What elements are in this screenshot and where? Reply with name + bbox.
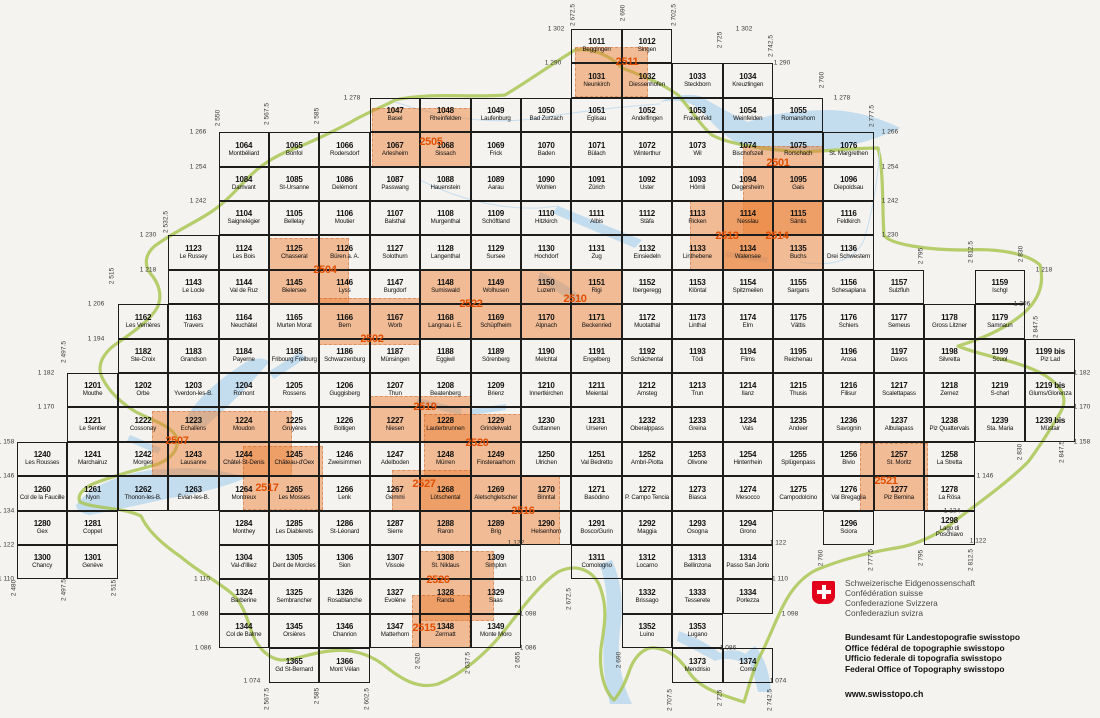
sheet-1252[interactable]: 1252Ambri-Piotta	[622, 442, 672, 476]
sheet-1239-bis[interactable]: 1239 bisMüstair	[1025, 407, 1075, 441]
sheet-number: 1055	[790, 107, 807, 115]
sheet-number: 1164	[236, 314, 253, 322]
sheet-number: 1243	[185, 451, 202, 459]
composite-sheet-number-2515: 2515	[412, 622, 435, 634]
sheet-1326[interactable]: 1326Rosablanche	[319, 579, 369, 613]
sheet-1251[interactable]: 1251Val Bedretto	[571, 442, 621, 476]
sheet-1238[interactable]: 1238Piz Quattervals	[924, 407, 974, 441]
sheet-1205[interactable]: 1205Rossens	[269, 373, 319, 407]
sheet-name: Guttannen	[532, 426, 560, 432]
sheet-name: Scuol	[992, 357, 1007, 363]
sheet-name: Marchairuz	[78, 460, 107, 466]
sheet-1111[interactable]: 1111Albis	[571, 201, 621, 235]
sheet-1300[interactable]: 1300Chancy	[17, 545, 67, 579]
sheet-1145[interactable]: 1145Bielersee	[269, 270, 319, 304]
sheet-1225[interactable]: 1225Gruyères	[269, 407, 319, 441]
sheet-name: Bischofszell	[732, 151, 763, 157]
sheet-1216[interactable]: 1216Filisur	[823, 373, 873, 407]
sheet-1280[interactable]: 1280Gex	[17, 511, 67, 545]
sheet-1047[interactable]: 1047Basel	[370, 98, 420, 132]
sheet-1230[interactable]: 1230Guttannen	[521, 407, 571, 441]
sheet-1095[interactable]: 1095Gais	[773, 167, 823, 201]
sheet-1011[interactable]: 1011Beggingen	[571, 29, 621, 63]
sheet-name: Biasca	[689, 495, 707, 501]
sheet-1188[interactable]: 1188Eggiwil	[420, 339, 470, 373]
sheet-1210[interactable]: 1210Innertkirchen	[521, 373, 571, 407]
sheet-name: Splügenpass	[781, 460, 815, 466]
sheet-1201[interactable]: 1201Mouthe	[67, 373, 117, 407]
sheet-1157[interactable]: 1157Sulzfluh	[874, 270, 924, 304]
sheet-1034[interactable]: 1034Kreuzlingen	[723, 63, 773, 97]
sheet-1066[interactable]: 1066Rodersdorf	[319, 132, 369, 166]
sheet-number: 1312	[638, 554, 655, 562]
sheet-1165[interactable]: 1165Murten Morat	[269, 304, 319, 338]
sheet-number: 1265	[286, 486, 303, 494]
sheet-1204[interactable]: 1204Romont	[219, 373, 269, 407]
sheet-1109[interactable]: 1109Schöftland	[471, 201, 521, 235]
sheet-name: Sulzfluh	[889, 288, 910, 294]
sheet-number: 1105	[286, 210, 303, 218]
sheet-1366[interactable]: 1366Mont Vélan	[319, 648, 369, 682]
sheet-1073[interactable]: 1073Wil	[672, 132, 722, 166]
sheet-name: Adelboden	[381, 460, 409, 466]
sheet-1256[interactable]: 1256Bivio	[823, 442, 873, 476]
sheet-1152[interactable]: 1152Ibergeregg	[622, 270, 672, 304]
sheet-name: Randa	[437, 598, 454, 604]
sheet-1198[interactable]: 1198Silvretta	[924, 339, 974, 373]
sheet-1182[interactable]: 1182Ste-Croix	[118, 339, 168, 373]
sheet-1054[interactable]: 1054Weinfelden	[723, 98, 773, 132]
sheet-number: 1353	[689, 623, 706, 631]
sheet-1334[interactable]: 1334Porlezza	[723, 579, 773, 613]
sheet-number: 1344	[235, 623, 252, 631]
sheet-1221[interactable]: 1221Le Sentier	[67, 407, 117, 441]
sheet-1085[interactable]: 1085St-Ursanne	[269, 167, 319, 201]
sheet-name: Bielersee	[282, 288, 306, 294]
sheet-1072[interactable]: 1072Winterthur	[622, 132, 672, 166]
sheet-1272[interactable]: 1272P. Campo Tencia	[622, 476, 672, 510]
sheet-1209[interactable]: 1209Brienz	[471, 373, 521, 407]
sheet-name: Sargans	[787, 288, 809, 294]
sheet-1092[interactable]: 1092Uster	[622, 167, 672, 201]
sheet-1245[interactable]: 1245Château-d'Oex	[269, 442, 319, 476]
sheet-name: Gemmi	[385, 495, 404, 501]
sheet-1154[interactable]: 1154Spitzmeilen	[723, 270, 773, 304]
sheet-number: 1034	[739, 73, 756, 81]
sheet-name: Sembrancher	[276, 598, 312, 604]
sheet-name: Lauterbrunnen	[426, 426, 464, 432]
sheet-1091[interactable]: 1091Zürich	[571, 167, 621, 201]
sheet-1263[interactable]: 1263Évian-les-B.	[168, 476, 218, 510]
sheet-1233[interactable]: 1233Greina	[672, 407, 722, 441]
sheet-1129[interactable]: 1129Sursee	[471, 235, 521, 269]
sheet-1055[interactable]: 1055Romanshorn	[773, 98, 823, 132]
sheet-1313[interactable]: 1313Bellinzona	[672, 545, 722, 579]
sheet-1174[interactable]: 1174Elm	[723, 304, 773, 338]
sheet-1156[interactable]: 1156Schesaplana	[823, 270, 873, 304]
sheet-1332[interactable]: 1332Brissago	[622, 579, 672, 613]
sheet-1260[interactable]: 1260Col de la Faucille	[17, 476, 67, 510]
sheet-1051[interactable]: 1051Eglisau	[571, 98, 621, 132]
sheet-name: Frauenfeld	[683, 116, 711, 122]
sheet-1271[interactable]: 1271Basòdino	[571, 476, 621, 510]
sheet-1301[interactable]: 1301Genève	[67, 545, 117, 579]
sheet-number: 1201	[84, 382, 101, 390]
sheet-name: Uster	[640, 185, 654, 191]
sheet-1262[interactable]: 1262Thonon-les-B.	[118, 476, 168, 510]
sheet-1032[interactable]: 1032Diessenhofen	[622, 63, 672, 97]
sheet-name: Innertkirchen	[529, 391, 563, 397]
sheet-1086[interactable]: 1086Delémont	[319, 167, 369, 201]
sheet-1127[interactable]: 1127Solothurn	[370, 235, 420, 269]
sheet-1076[interactable]: 1076St. Margrethen	[823, 132, 873, 166]
sheet-1236[interactable]: 1236Savognin	[823, 407, 873, 441]
sheet-1278[interactable]: 1278La Rösa	[924, 476, 974, 510]
sheet-1194[interactable]: 1194Flims	[723, 339, 773, 373]
composite-sheet-number-2522: 2522	[459, 298, 482, 310]
sheet-number: 1116	[841, 210, 857, 218]
sheet-1281[interactable]: 1281Coppet	[67, 511, 117, 545]
sheet-1346[interactable]: 1346Chanrion	[319, 614, 369, 648]
sheet-name: Frick	[489, 151, 502, 157]
sheet-1250[interactable]: 1250Ulrichen	[521, 442, 571, 476]
sheet-name: Ibergeregg	[633, 288, 661, 294]
sheet-1327[interactable]: 1327Evolène	[370, 579, 420, 613]
sheet-number: 1247	[386, 451, 403, 459]
sheet-name: Fribourg Freiburg	[272, 357, 317, 363]
sheet-1143[interactable]: 1143Le Locle	[168, 270, 218, 304]
swisstopo-sheet-index-map: 1011Beggingen1012Singen1031Neunkirch1032…	[0, 0, 1100, 718]
sheet-1116[interactable]: 1116Feldkirch	[823, 201, 873, 235]
sheet-1291[interactable]: 1291Bosco/Gurin	[571, 511, 621, 545]
sheet-name: Binntal	[537, 495, 555, 501]
sheet-number: 1324	[235, 589, 252, 597]
sheet-1306[interactable]: 1306Sion	[319, 545, 369, 579]
sheet-1275[interactable]: 1275Campodolcino	[773, 476, 823, 510]
sheet-name: Steckborn	[684, 82, 711, 88]
sheet-1131[interactable]: 1131Zug	[571, 235, 621, 269]
sheet-1293[interactable]: 1293Osogna	[672, 511, 722, 545]
sheet-1094[interactable]: 1094Degersheim	[723, 167, 773, 201]
sheet-name: Glurns/Glorenza	[1029, 391, 1072, 397]
sheet-1159[interactable]: 1159Ischgl	[975, 270, 1025, 304]
sheet-1224[interactable]: 1224Moudon	[219, 407, 269, 441]
sheet-1374[interactable]: 1374Como	[723, 648, 773, 682]
sheet-1197[interactable]: 1197Davos	[874, 339, 924, 373]
sheet-1069[interactable]: 1069Frick	[471, 132, 521, 166]
sheet-name: Weinfelden	[733, 116, 762, 122]
sheet-name: Hochdorf	[534, 254, 558, 260]
sheet-name: Morges	[133, 460, 153, 466]
sheet-1305[interactable]: 1305Dent de Morcles	[269, 545, 319, 579]
sheet-1033[interactable]: 1033Steckborn	[672, 63, 722, 97]
sheet-number: 1212	[638, 382, 655, 390]
sheet-number: 1263	[185, 486, 202, 494]
sheet-1231[interactable]: 1231Urseren	[571, 407, 621, 441]
sheet-1196[interactable]: 1196Arosa	[823, 339, 873, 373]
sheet-1184[interactable]: 1184Payerne	[219, 339, 269, 373]
sheet-1261[interactable]: 1261Nyon	[67, 476, 117, 510]
sheet-1199-bis[interactable]: 1199 bisPiz Lad	[1025, 339, 1075, 373]
sheet-number: 1074	[739, 142, 756, 150]
sheet-1344[interactable]: 1344Col de Balme	[219, 614, 269, 648]
sheet-number: 1332	[638, 589, 655, 597]
sheet-1257[interactable]: 1257St. Moritz	[874, 442, 924, 476]
sheet-number: 1143	[185, 279, 202, 287]
sheet-number: 1127	[387, 245, 404, 253]
swisstopo-url-link[interactable]: www.swisstopo.ch	[845, 689, 923, 699]
sheet-1258[interactable]: 1258La Stretta	[924, 442, 974, 476]
sheet-1163[interactable]: 1163Travers	[168, 304, 218, 338]
sheet-1144[interactable]: 1144Val de Ruz	[219, 270, 269, 304]
sheet-1273[interactable]: 1273Biasca	[672, 476, 722, 510]
sheet-1177[interactable]: 1177Serneus	[874, 304, 924, 338]
composite-sheet-number-2504: 2504	[313, 264, 336, 276]
sheet-1298[interactable]: 1298Lago di Poschiavo	[924, 511, 974, 545]
sheet-1130[interactable]: 1130Hochdorf	[521, 235, 571, 269]
sheet-1288[interactable]: 1288Raron	[420, 511, 470, 545]
sheet-1240[interactable]: 1240Les Rousses	[17, 442, 67, 476]
sheet-1096[interactable]: 1096Diepoldsau	[823, 167, 873, 201]
sheet-1255[interactable]: 1255Splügenpass	[773, 442, 823, 476]
sheet-1104[interactable]: 1104Saignelégier	[219, 201, 269, 235]
sheet-1217[interactable]: 1217Scalettapass	[874, 373, 924, 407]
sheet-1147[interactable]: 1147Burgdorf	[370, 270, 420, 304]
sheet-number: 1261	[84, 486, 101, 494]
sheet-1242[interactable]: 1242Morges	[118, 442, 168, 476]
sheet-1049[interactable]: 1049Laufenburg	[471, 98, 521, 132]
sheet-number: 1195	[790, 348, 807, 356]
sheet-1222[interactable]: 1222Cossonay	[118, 407, 168, 441]
sheet-1179[interactable]: 1179Samnaun	[975, 304, 1025, 338]
sheet-1170[interactable]: 1170Alpnach	[521, 304, 571, 338]
sheet-1373[interactable]: 1373Mendrisio	[672, 648, 722, 682]
sheet-number: 1268	[437, 486, 454, 494]
sheet-1112[interactable]: 1112Stäfa	[622, 201, 672, 235]
sheet-1202[interactable]: 1202Orbe	[118, 373, 168, 407]
sheet-1219[interactable]: 1219S-charl	[975, 373, 1025, 407]
sheet-1106[interactable]: 1106Moutier	[319, 201, 369, 235]
sheet-name: Brissago	[636, 598, 659, 604]
sheet-name: Vissoie	[386, 563, 405, 569]
sheet-1325[interactable]: 1325Sembrancher	[269, 579, 319, 613]
sheet-1365[interactable]: 1365Gd St-Bernard	[269, 648, 319, 682]
sheet-1173[interactable]: 1173Linthal	[672, 304, 722, 338]
sheet-1190[interactable]: 1190Melchtal	[521, 339, 571, 373]
sheet-1304[interactable]: 1304Val-d'Illiez	[219, 545, 269, 579]
sheet-1084[interactable]: 1084Damvant	[219, 167, 269, 201]
sheet-number: 1218	[941, 382, 958, 390]
sheet-1107[interactable]: 1107Balsthal	[370, 201, 420, 235]
sheet-number: 1067	[386, 142, 403, 150]
sheet-name: Le Sentier	[79, 426, 106, 432]
sheet-1203[interactable]: 1203Yverdon-les-B.	[168, 373, 218, 407]
sheet-name: Degersheim	[732, 185, 764, 191]
sheet-1218[interactable]: 1218Zernez	[924, 373, 974, 407]
sheet-1048[interactable]: 1048Rheinfelden	[420, 98, 470, 132]
sheet-1052[interactable]: 1052Andelfingen	[622, 98, 672, 132]
sheet-1090[interactable]: 1090Wohlen	[521, 167, 571, 201]
sheet-1349[interactable]: 1349Monte Moro	[471, 614, 521, 648]
sheet-1352[interactable]: 1352Luino	[622, 614, 672, 648]
sheet-1191[interactable]: 1191Engelberg	[571, 339, 621, 373]
sheet-name: S-charl	[991, 391, 1010, 397]
sheet-1274[interactable]: 1274Mesocco	[723, 476, 773, 510]
sheet-1248[interactable]: 1248Mürren	[420, 442, 470, 476]
sheet-number: 1146	[336, 279, 353, 287]
sheet-1185[interactable]: 1185Fribourg Freiburg	[269, 339, 319, 373]
sheet-1287[interactable]: 1287Sierre	[370, 511, 420, 545]
sheet-1292[interactable]: 1292Maggia	[622, 511, 672, 545]
sheet-1175[interactable]: 1175Vättis	[773, 304, 823, 338]
sheet-1089[interactable]: 1089Aarau	[471, 167, 521, 201]
sheet-number: 1288	[437, 520, 454, 528]
sheet-1070[interactable]: 1070Baden	[521, 132, 571, 166]
sheet-1314[interactable]: 1314Passo San Jorio	[723, 545, 773, 579]
office-line-it: Ufficio federale di topografia swisstopo	[845, 653, 1097, 664]
sheet-1206[interactable]: 1206Guggisberg	[319, 373, 369, 407]
sheet-name: Aletschgletscher	[474, 495, 517, 501]
sheet-name: Vals	[742, 426, 753, 432]
composite-sheet-number-2511: 2511	[616, 56, 639, 68]
sheet-1189[interactable]: 1189Sörenberg	[471, 339, 521, 373]
composite-sheet-number-2520: 2520	[465, 437, 488, 449]
sheet-1226[interactable]: 1226Boltigen	[319, 407, 369, 441]
sheet-1172[interactable]: 1172Muotathal	[622, 304, 672, 338]
sheet-1065[interactable]: 1065Bonfol	[269, 132, 319, 166]
sheet-1192[interactable]: 1192Schächental	[622, 339, 672, 373]
sheet-1213[interactable]: 1213Trun	[672, 373, 722, 407]
sheet-1088[interactable]: 1088Hauenstein	[420, 167, 470, 201]
sheet-number: 1033	[689, 73, 706, 81]
sheet-number: 1307	[386, 554, 403, 562]
sheet-number: 1300	[34, 554, 51, 562]
sheet-1309[interactable]: 1309Simplon	[471, 545, 521, 579]
sheet-1345[interactable]: 1345Orsières	[269, 614, 319, 648]
sheet-1110[interactable]: 1110Hitzkirch	[521, 201, 571, 235]
sheet-1105[interactable]: 1105Bellelay	[269, 201, 319, 235]
sheet-1215[interactable]: 1215Thusis	[773, 373, 823, 407]
composite-sheet-number-2521: 2521	[874, 475, 897, 487]
sheet-name: Yverdon-les-B.	[174, 391, 212, 397]
sheet-1123[interactable]: 1123Le Russey	[168, 235, 218, 269]
sheet-1324[interactable]: 1324Barberine	[219, 579, 269, 613]
sheet-1183[interactable]: 1183Grandson	[168, 339, 218, 373]
composite-sheet-number-2501: 2501	[766, 157, 789, 169]
sheet-1285[interactable]: 1285Les Diablerets	[269, 511, 319, 545]
sheet-name: Hörnli	[690, 185, 705, 191]
sheet-1246[interactable]: 1246Zweisimmen	[319, 442, 369, 476]
sheet-1232[interactable]: 1232Oberalppass	[622, 407, 672, 441]
sheet-1286[interactable]: 1286St-Léonard	[319, 511, 369, 545]
sheet-1284[interactable]: 1284Monthey	[219, 511, 269, 545]
sheet-number: 1227	[386, 417, 403, 425]
sheet-1266[interactable]: 1266Lenk	[319, 476, 369, 510]
sheet-1050[interactable]: 1050Bad Zurzach	[521, 98, 571, 132]
sheet-1136[interactable]: 1136Drei Schwestern	[823, 235, 873, 269]
sheet-name: Einsiedeln	[633, 254, 660, 260]
sheet-1053[interactable]: 1053Frauenfeld	[672, 98, 722, 132]
sheet-1153[interactable]: 1153Klöntal	[672, 270, 722, 304]
sheet-1307[interactable]: 1307Vissoie	[370, 545, 420, 579]
sheet-1162[interactable]: 1162Les Verrières	[118, 304, 168, 338]
sheet-1212[interactable]: 1212Amsteg	[622, 373, 672, 407]
sheet-1124[interactable]: 1124Les Bois	[219, 235, 269, 269]
sheet-name: Wohlen	[536, 185, 556, 191]
sheet-1087[interactable]: 1087Passwang	[370, 167, 420, 201]
sheet-1329[interactable]: 1329Saas	[471, 579, 521, 613]
sheet-number: 1054	[739, 107, 756, 115]
sheet-number: 1156	[840, 279, 857, 287]
sheet-1155[interactable]: 1155Sargans	[773, 270, 823, 304]
sheet-number: 1273	[689, 486, 706, 494]
sheet-1171[interactable]: 1171Beckenried	[571, 304, 621, 338]
sheet-1333[interactable]: 1333Tesserete	[672, 579, 722, 613]
sheet-1294[interactable]: 1294Grono	[723, 511, 773, 545]
sheet-1312[interactable]: 1312Locarno	[622, 545, 672, 579]
sheet-1214[interactable]: 1214Ilanz	[723, 373, 773, 407]
sheet-name: Rigi	[592, 288, 602, 294]
sheet-1296[interactable]: 1296Sciora	[823, 511, 873, 545]
sheet-1176[interactable]: 1176Schiers	[823, 304, 873, 338]
sheet-1108[interactable]: 1108Murgenthal	[420, 201, 470, 235]
sheet-name: Laufenburg	[481, 116, 511, 122]
sheet-1237[interactable]: 1237Albulapass	[874, 407, 924, 441]
sheet-1164[interactable]: 1164Neuchâtel	[219, 304, 269, 338]
sheet-number: 1094	[739, 176, 756, 184]
sheet-number: 1163	[185, 314, 202, 322]
sheet-1071[interactable]: 1071Bülach	[571, 132, 621, 166]
sheet-name: Les Mosses	[278, 495, 310, 501]
sheet-1247[interactable]: 1247Adelboden	[370, 442, 420, 476]
sheet-1093[interactable]: 1093Hörnli	[672, 167, 722, 201]
sheet-1178[interactable]: 1178Gross Litzner	[924, 304, 974, 338]
sheet-name: Neunkirch	[583, 82, 610, 88]
sheet-1244[interactable]: 1244Châtel-St-Denis	[219, 442, 269, 476]
sheet-1128[interactable]: 1128Langenthal	[420, 235, 470, 269]
sheet-1064[interactable]: 1064Montbéliard	[219, 132, 269, 166]
sheet-number: 1088	[437, 176, 454, 184]
sheet-1276[interactable]: 1276Val Bregaglia	[823, 476, 873, 510]
sheet-number: 1224	[235, 417, 252, 425]
sheet-1067[interactable]: 1067Arlesheim	[370, 132, 420, 166]
sheet-1253[interactable]: 1253Olivone	[672, 442, 722, 476]
composite-sheet-number-2526: 2526	[426, 574, 449, 586]
sheet-1125[interactable]: 1125Chasseral	[269, 235, 319, 269]
sheet-1254[interactable]: 1254Hinterrhein	[723, 442, 773, 476]
sheet-1353[interactable]: 1353Lugano	[672, 614, 722, 648]
sheet-1195[interactable]: 1195Reichenau	[773, 339, 823, 373]
sheet-1234[interactable]: 1234Vals	[723, 407, 773, 441]
sheet-name: Grindelwald	[480, 426, 511, 432]
sheet-1199[interactable]: 1199Scuol	[975, 339, 1025, 373]
sheet-1132[interactable]: 1132Einsiedeln	[622, 235, 672, 269]
sheet-1239[interactable]: 1239Sta. Maria	[975, 407, 1025, 441]
sheet-number: 1276	[840, 486, 857, 494]
sheet-name: Müstair	[1041, 426, 1060, 432]
sheet-1193[interactable]: 1193Tödi	[672, 339, 722, 373]
sheet-1235[interactable]: 1235Andeer	[773, 407, 823, 441]
sheet-1219-bis[interactable]: 1219 bisGlurns/Glorenza	[1025, 373, 1075, 407]
sheet-name: Sissach	[435, 151, 456, 157]
sheet-number: 1123	[185, 245, 202, 253]
sheet-number: 1070	[538, 142, 555, 150]
sheet-1241[interactable]: 1241Marchairuz	[67, 442, 117, 476]
sheet-1211[interactable]: 1211Meiental	[571, 373, 621, 407]
sheet-1311[interactable]: 1311Comologno	[571, 545, 621, 579]
sheet-name: Guggisberg	[329, 391, 360, 397]
sheet-1031[interactable]: 1031Neunkirch	[571, 63, 621, 97]
